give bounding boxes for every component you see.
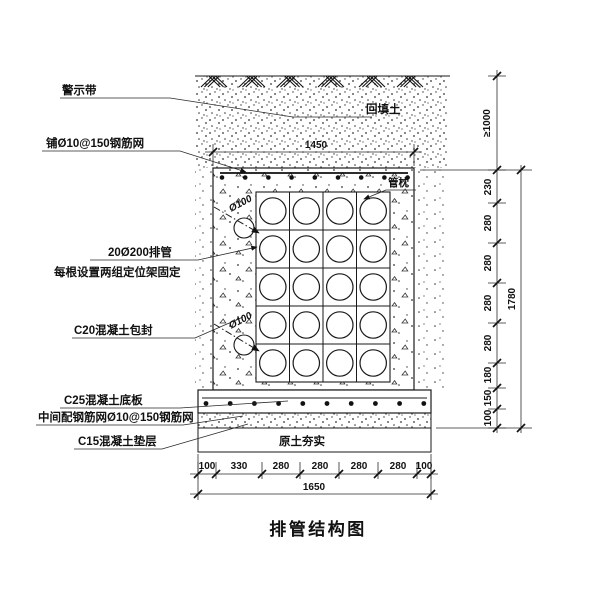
dim-right-seg-5: 180 xyxy=(483,366,494,383)
dim-bottom-seg-1: 330 xyxy=(231,461,248,472)
pipe-bank-structure-drawing: 原土夯实 警示带 铺Ø10@150钢筋网 20Ø200排管 每根设置两组定位架固… xyxy=(0,0,600,600)
phi100-circle-lower xyxy=(234,335,254,355)
c15-cushion-layer xyxy=(198,413,431,428)
dim-right-seg-7: 100 xyxy=(483,409,494,426)
dim-bottom-seg-0: 100 xyxy=(199,461,216,472)
dim-top-width: 1450 xyxy=(305,140,328,151)
dim-cover-depth: ≥1000 xyxy=(482,109,493,137)
dim-bottom-seg-2: 280 xyxy=(273,461,290,472)
pipe-pillow-label: 管枕 xyxy=(388,176,409,189)
drawing-page: 原土夯实 警示带 铺Ø10@150钢筋网 20Ø200排管 每根设置两组定位架固… xyxy=(0,0,600,600)
warning-tape-label: 警示带 xyxy=(61,83,97,97)
dim-bottom-seg-6: 100 xyxy=(416,461,433,472)
pipes-label-line1: 20Ø200排管 xyxy=(108,245,172,259)
dim-bottom-total: 1650 xyxy=(303,482,326,493)
drawing-title: 排管结构图 xyxy=(269,519,367,539)
slab-mesh-label: 中间配钢筋网Ø10@150钢筋网 xyxy=(38,410,194,424)
backfill-soil-label: 回填土 xyxy=(366,102,401,116)
c25-base-slab xyxy=(198,390,431,413)
dim-right-seg-3: 280 xyxy=(483,294,494,311)
cushion-label: C15混凝土垫层 xyxy=(78,434,157,448)
dim-right-seg-4: 280 xyxy=(483,334,494,351)
dim-right-total: 1780 xyxy=(507,287,518,310)
trench-left-soil xyxy=(195,168,213,390)
base-slab-label: C25混凝土底板 xyxy=(64,393,143,407)
dim-bottom-seg-4: 280 xyxy=(351,461,368,472)
dim-right-seg-2: 280 xyxy=(483,254,494,271)
dim-bottom-seg-3: 280 xyxy=(312,461,329,472)
dim-right-seg-6: 150 xyxy=(483,389,494,406)
top-mesh-label: 铺Ø10@150钢筋网 xyxy=(46,136,144,150)
pipes-label-line2: 每根设置两组定位架固定 xyxy=(54,265,181,279)
subgrade-label: 原土夯实 xyxy=(279,434,325,448)
trench-right-soil xyxy=(414,168,448,390)
dim-right-seg-1: 280 xyxy=(483,214,494,231)
dim-right-seg-0: 230 xyxy=(483,178,494,195)
dim-bottom-seg-5: 280 xyxy=(390,461,407,472)
backfill-soil-hatch xyxy=(195,76,448,168)
encasement-label: C20混凝土包封 xyxy=(74,323,153,337)
